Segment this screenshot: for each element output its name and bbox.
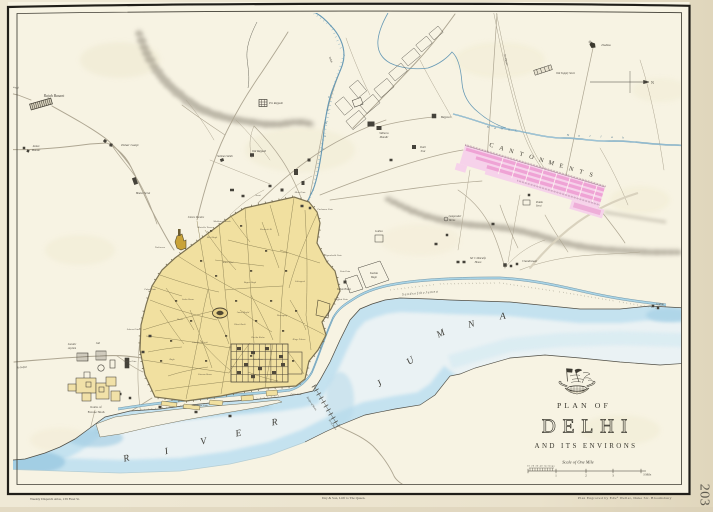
svg-text:3: 3 xyxy=(612,474,614,478)
svg-text:C: C xyxy=(328,95,330,99)
svg-text:Lahore Gate: Lahore Gate xyxy=(126,328,141,331)
svg-text:Mantar: Mantar xyxy=(31,149,41,152)
svg-text:Begum Bagh: Begum Bagh xyxy=(244,281,257,284)
svg-text:Serai: Serai xyxy=(255,194,261,197)
svg-text:Sadar Bazar: Sadar Bazar xyxy=(182,298,194,301)
svg-text:Mahbara Purash: Mahbara Purash xyxy=(212,220,231,223)
svg-text:Dariba Kalan: Dariba Kalan xyxy=(250,336,265,339)
svg-text:Rajah Basant: Rajah Basant xyxy=(43,94,66,98)
svg-text:2: 2 xyxy=(585,474,587,478)
svg-text:Nigambodh Gate: Nigambodh Gate xyxy=(323,254,342,257)
svg-text:Mori Bagh: Mori Bagh xyxy=(206,236,218,239)
svg-text:Mr C Metcalfe: Mr C Metcalfe xyxy=(469,257,487,260)
svg-text:Darb: Darb xyxy=(419,146,427,149)
svg-text:Katra Neel: Katra Neel xyxy=(222,261,234,264)
svg-text:Mandir: Mandir xyxy=(379,135,390,139)
svg-text:Gunpowder: Gunpowder xyxy=(449,215,463,218)
svg-text:Khari Baoli: Khari Baoli xyxy=(233,323,246,326)
svg-text:Feroze Shah: Feroze Shah xyxy=(88,410,105,414)
svg-text:Gate Gate: Gate Gate xyxy=(340,270,351,273)
svg-text:Bagh: Bagh xyxy=(169,358,175,361)
svg-text:Jantee: Jantee xyxy=(32,145,40,148)
svg-text:Pahar Ganje: Pahar Ganje xyxy=(120,143,139,147)
svg-text:Old Supply Store: Old Supply Store xyxy=(556,72,576,75)
svg-text:Daryaganj: Daryaganj xyxy=(276,314,288,317)
svg-text:3 Mils: 3 Mils xyxy=(643,473,652,477)
svg-text:Lunatic: Lunatic xyxy=(67,343,77,346)
svg-text:Chandrawal: Chandrawal xyxy=(522,259,537,263)
svg-text:Subzee Mundee: Subzee Mundee xyxy=(188,216,205,219)
svg-text:Bajpoor: Bajpoor xyxy=(441,115,452,119)
svg-text:Subhan Sahib: Subhan Sahib xyxy=(217,155,233,158)
svg-text:Salimgarh: Salimgarh xyxy=(295,280,306,283)
svg-text:Jail: Jail xyxy=(96,342,100,345)
svg-text:More Gate: More Gate xyxy=(294,191,307,194)
svg-text:Jama Masjid: Jama Masjid xyxy=(237,311,250,314)
svg-text:L: L xyxy=(322,147,324,151)
svg-text:Works: Works xyxy=(449,219,456,222)
svg-text:Chandni Chowk: Chandni Chowk xyxy=(192,341,208,344)
svg-text:Bagh: Bagh xyxy=(371,276,378,279)
svg-text:203: 203 xyxy=(697,484,712,507)
svg-text:Cabul Gate: Cabul Gate xyxy=(144,288,156,291)
svg-text:Scale of One Mile: Scale of One Mile xyxy=(562,460,594,465)
svg-text:Old Rajpath: Old Rajpath xyxy=(252,149,267,153)
svg-text:Cashmere Gate: Cashmere Gate xyxy=(317,208,333,211)
svg-text:Rajghat Gate: Rajghat Gate xyxy=(333,298,348,301)
svg-text:10 20 30 40 furlongs: 10 20 30 40 furlongs xyxy=(527,465,555,468)
svg-text:Kudsia: Kudsia xyxy=(369,272,379,275)
svg-text:Mortello Tower: Mortello Tower xyxy=(196,226,213,229)
svg-text:1: 1 xyxy=(555,474,557,478)
svg-text:Serai: Serai xyxy=(536,205,542,208)
svg-text:Faiz Bazar: Faiz Bazar xyxy=(252,358,264,361)
svg-text:Ajmere Gate: Ajmere Gate xyxy=(123,360,138,363)
svg-text:l: l xyxy=(590,134,591,138)
svg-text:Pre Rajpath: Pre Rajpath xyxy=(268,101,283,105)
svg-text:Bazar: Bazar xyxy=(177,318,183,321)
svg-text:Kotla of: Kotla of xyxy=(90,405,102,409)
svg-text:Gullun: Gullun xyxy=(656,303,664,306)
svg-text:Toorkman Gate: Toorkman Gate xyxy=(192,404,208,407)
svg-text:Dahka: Dahka xyxy=(600,43,611,47)
svg-text:Sitaram Bazar: Sitaram Bazar xyxy=(198,373,212,376)
svg-text:l: l xyxy=(601,135,602,139)
svg-text:AND ITS ENVIRONS: AND ITS ENVIRONS xyxy=(535,442,638,450)
svg-text:Sultan House: Sultan House xyxy=(337,288,352,291)
svg-text:House: House xyxy=(474,261,483,264)
svg-text:Ludlow: Ludlow xyxy=(374,230,383,233)
svg-text:Asylum: Asylum xyxy=(67,347,76,350)
svg-text:N: N xyxy=(651,80,654,85)
svg-text:Kings Palace: Kings Palace xyxy=(292,338,306,341)
svg-text:Bhatec Serai: Bhatec Serai xyxy=(136,192,151,195)
svg-text:Delhi Gate: Delhi Gate xyxy=(289,393,302,396)
svg-text:Srai: Srai xyxy=(421,150,426,153)
svg-text:Teeliwara: Teeliwara xyxy=(155,246,166,249)
svg-text:Kashmiri Kt: Kashmiri Kt xyxy=(259,228,272,231)
svg-text:DELHI: DELHI xyxy=(542,417,634,438)
svg-text:PLAN OF: PLAN OF xyxy=(557,401,611,410)
